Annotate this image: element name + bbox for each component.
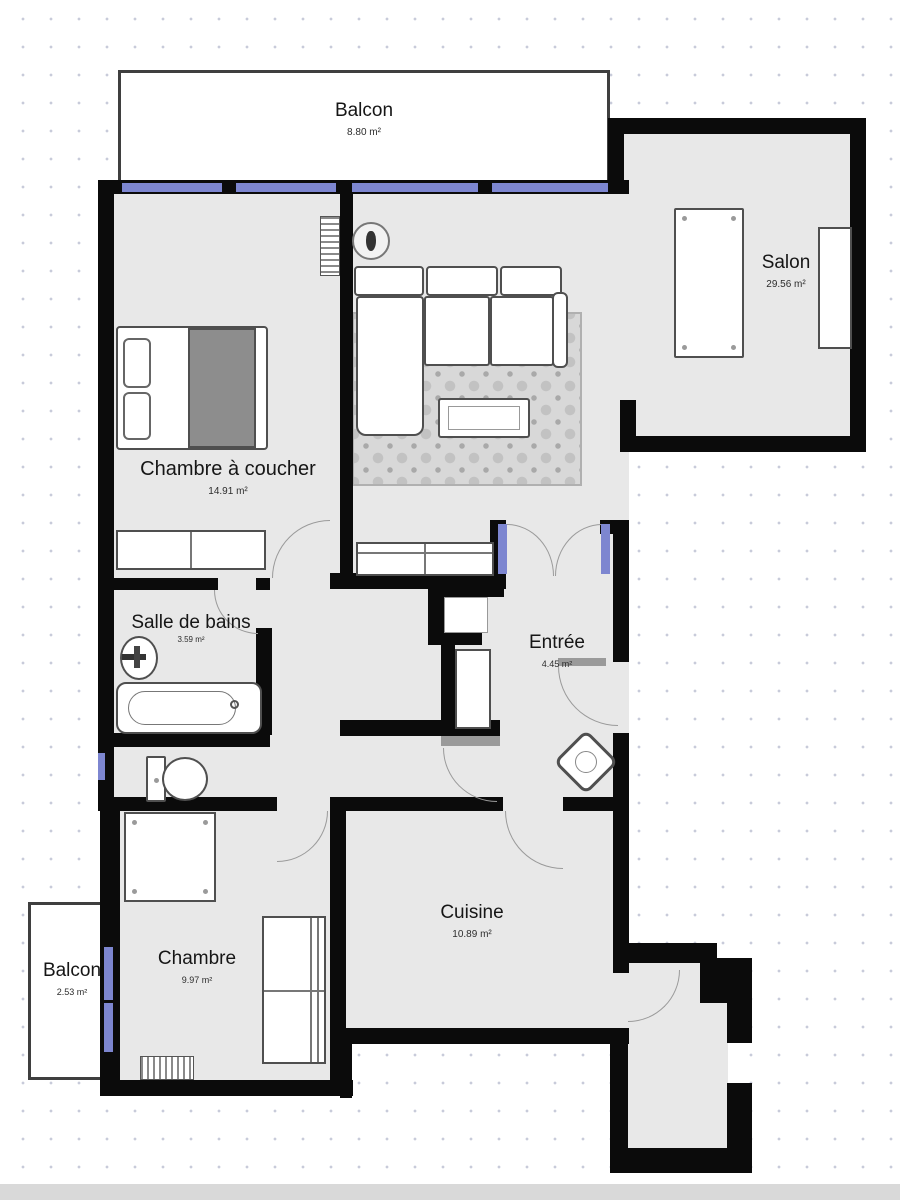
- dresser-divider: [190, 532, 192, 568]
- wall-closet-bottom: [428, 633, 482, 645]
- window-chambre-2: [104, 1003, 113, 1052]
- sofa-seat-cushion-2: [490, 296, 554, 366]
- bottom-bar: [0, 1184, 900, 1200]
- toilet-tank-dot: [154, 778, 159, 783]
- sofa-armrest: [552, 292, 568, 368]
- bathtub-drain: [230, 700, 239, 709]
- chambre-radiator-icon: [140, 1056, 194, 1080]
- room-area: 2.53 m²: [27, 987, 117, 997]
- desk-corner-dot: [132, 820, 137, 825]
- wall-cuisine-right: [613, 811, 629, 973]
- salon-table: [674, 208, 744, 358]
- wall-left-upper: [98, 180, 114, 747]
- coffee-table-inner: [448, 406, 520, 430]
- room-label-entree: Entrée 4.45 m²: [529, 632, 585, 669]
- room-area: 4.45 m²: [529, 659, 585, 669]
- bathtub: [116, 682, 262, 734]
- room-name: Balcon: [335, 100, 393, 121]
- wall-entree-right: [613, 520, 629, 662]
- desk-corner-dot: [132, 889, 137, 894]
- room-label-salle-de-bains: Salle de bains 3.59 m²: [131, 612, 251, 644]
- bed-pillow-top: [123, 338, 151, 388]
- wall-cuisine-bottom: [340, 1028, 629, 1044]
- wall-shaft-right-upper: [727, 1003, 752, 1043]
- table-corner-dot: [731, 216, 736, 221]
- closet-interior: [444, 597, 488, 633]
- room-area: 3.59 m²: [131, 635, 251, 644]
- wall-shaft-right-lower: [727, 1083, 752, 1153]
- floor-plan: Balcon 8.80 m² Salon 29.56 m² Chambre à …: [0, 0, 900, 1200]
- room-name: Chambre: [158, 948, 236, 969]
- bedroom-dresser: [116, 530, 266, 570]
- room-label-salon: Salon 29.56 m²: [762, 252, 811, 290]
- wall-shaft-top-right: [700, 958, 752, 1003]
- chambre-desk: [124, 812, 216, 902]
- table-corner-dot: [731, 345, 736, 350]
- sofa-seat-cushion-1: [424, 296, 490, 366]
- glass-door-jamb-left: [498, 524, 507, 574]
- desk-corner-dot: [203, 820, 208, 825]
- wall-shaft-bottom: [610, 1148, 752, 1173]
- room-name: Cuisine: [440, 902, 503, 923]
- wall-bath-top-stub: [256, 578, 270, 590]
- sofa-back-cushion-2: [426, 266, 498, 296]
- room-label-balcon-top: Balcon 8.80 m²: [335, 100, 393, 138]
- wall-salon-bottom: [636, 436, 866, 452]
- bathtub-inner: [128, 691, 236, 725]
- corner-basin-bowl: [570, 746, 601, 777]
- window-wc: [98, 753, 105, 780]
- sofa-back-cushion-3: [500, 266, 562, 296]
- sideboard-shelf-line: [358, 552, 492, 554]
- room-label-chambre-a-coucher: Chambre à coucher 14.91 m²: [140, 458, 316, 497]
- bed: [116, 326, 268, 450]
- wall-closet-top: [428, 585, 504, 597]
- bed-blanket: [188, 328, 256, 448]
- room-name: Chambre à coucher: [140, 458, 316, 480]
- wall-bath-bottom: [98, 733, 270, 747]
- window-top-1: [122, 183, 222, 192]
- wall-salon-left-stub: [608, 118, 624, 190]
- wall-salon-right: [850, 118, 866, 452]
- room-area: 8.80 m²: [335, 127, 393, 138]
- living-radiator-icon: [320, 216, 340, 276]
- room-area: 14.91 m²: [140, 486, 316, 497]
- glass-door-jamb-right: [601, 524, 610, 574]
- corner-basin: [552, 728, 622, 798]
- wall-bedroom-living-partition: [340, 194, 353, 584]
- room-name: Entrée: [529, 632, 585, 653]
- ceiling-lamp-icon: [352, 222, 390, 260]
- room-label-chambre: Chambre 9.97 m²: [158, 948, 236, 985]
- corner-basin-body: [553, 729, 618, 794]
- coffee-table: [438, 398, 530, 438]
- room-name: Salon: [762, 252, 811, 273]
- window-top-3: [352, 183, 478, 192]
- wall-salon-step: [620, 400, 636, 452]
- room-area: 10.89 m²: [440, 929, 503, 940]
- sink-faucet-icon-stem: [134, 646, 140, 668]
- room-name: Balcon: [27, 960, 117, 981]
- bed-pillow-bottom: [123, 392, 151, 440]
- wall-below-partition: [340, 1044, 352, 1098]
- sofa-back-cushion-1: [354, 266, 424, 296]
- room-name: Salle de bains: [131, 612, 251, 633]
- desk-corner-dot: [203, 889, 208, 894]
- hall-door-threshold: [441, 736, 500, 746]
- wardrobe-shelf-line: [264, 990, 324, 992]
- wall-salon-top: [608, 118, 866, 134]
- room-label-balcon-bottom: Balcon 2.53 m²: [27, 960, 117, 997]
- window-top-4: [492, 183, 608, 192]
- sideboard-divider-1: [424, 544, 426, 574]
- room-area: 9.97 m²: [158, 975, 236, 985]
- room-area: 29.56 m²: [762, 279, 811, 290]
- living-sideboard: [356, 542, 494, 576]
- table-corner-dot: [682, 345, 687, 350]
- salon-sideboard: [818, 227, 852, 349]
- wall-cuisine-top-right: [563, 797, 629, 811]
- chambre-wardrobe: [262, 916, 326, 1064]
- wall-shaft-left: [610, 1030, 628, 1150]
- wall-bath-top: [114, 578, 218, 590]
- entree-cabinet: [455, 649, 491, 729]
- window-top-2: [236, 183, 336, 192]
- lamp-glyph: [366, 231, 376, 251]
- room-label-cuisine: Cuisine 10.89 m²: [440, 902, 503, 940]
- table-corner-dot: [682, 216, 687, 221]
- sofa-chaise: [356, 296, 424, 436]
- wall-chambre-bottom: [100, 1080, 353, 1096]
- toilet-bowl: [162, 757, 208, 801]
